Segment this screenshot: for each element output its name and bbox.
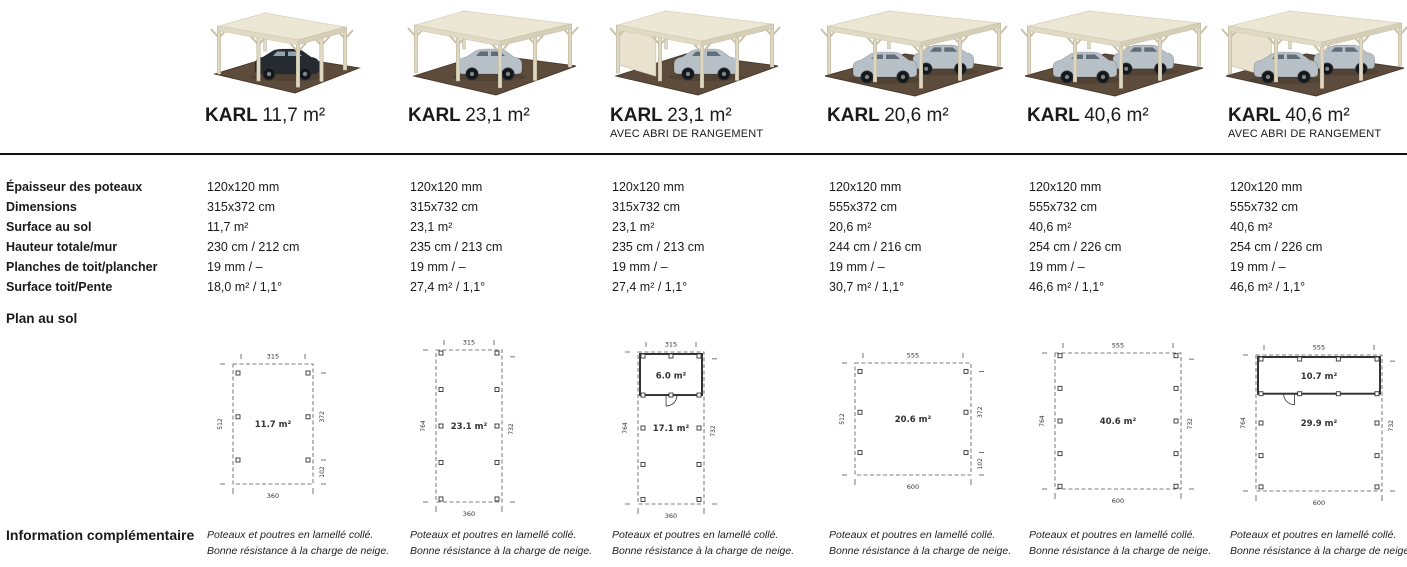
- carport-photo-illustration: [819, 0, 1009, 100]
- spec-value: 19 mm / –: [610, 257, 827, 277]
- spec-value: 23,1 m²: [610, 217, 827, 237]
- product-title-4: KARL 20,6 m²: [827, 105, 1027, 153]
- svg-text:20.6 m²: 20.6 m²: [895, 415, 932, 425]
- product-name: KARL: [827, 105, 880, 126]
- info-text-5: Poteaux et poutres en lamellé collé. Bon…: [1027, 527, 1228, 559]
- info-line: Poteaux et poutres en lamellé collé.: [612, 527, 827, 543]
- product-size: 23,1 m²: [667, 105, 731, 126]
- svg-text:512: 512: [839, 413, 846, 425]
- info-text-1: Poteaux et poutres en lamellé collé. Bon…: [205, 527, 408, 559]
- carport-photo-illustration: [602, 0, 792, 100]
- svg-text:6.0 m²: 6.0 m²: [656, 372, 687, 382]
- spec-value: 40,6 m²: [1027, 217, 1228, 237]
- floor-plan-4: 55560051237210220.6 m²: [827, 337, 1027, 525]
- svg-text:600: 600: [1112, 497, 1124, 505]
- spec-value: 244 cm / 216 cm: [827, 237, 1027, 257]
- product-subtitle: AVEC ABRI DE RANGEMENT: [1228, 128, 1407, 140]
- svg-text:360: 360: [463, 510, 475, 518]
- svg-text:17.1 m²: 17.1 m²: [653, 424, 690, 434]
- spec-value: 19 mm / –: [1228, 257, 1407, 277]
- spec-label: Épaisseur des poteaux: [0, 177, 205, 197]
- spec-value: 315x732 cm: [408, 197, 610, 217]
- spec-value: 315x372 cm: [205, 197, 408, 217]
- spec-label: Planches de toit/plancher: [0, 257, 205, 277]
- spec-value: 19 mm / –: [408, 257, 610, 277]
- spec-value: 254 cm / 226 cm: [1228, 237, 1407, 257]
- spec-value: 235 cm / 213 cm: [408, 237, 610, 257]
- svg-text:732: 732: [1388, 420, 1395, 432]
- spec-label: Hauteur totale/mur: [0, 237, 205, 257]
- spec-value: 315x732 cm: [610, 197, 827, 217]
- svg-text:40.6 m²: 40.6 m²: [1100, 417, 1137, 427]
- plan-section-title: Plan au sol: [0, 311, 205, 333]
- floor-plan-diagram: 31536076473223.1 m²: [412, 337, 530, 521]
- svg-text:555: 555: [1313, 344, 1325, 352]
- product-headers-row: KARL 11,7 m² KARL 23,1 m² KARL 23,1 m² A…: [0, 100, 1407, 153]
- floor-plan-5: 55560076473240.6 m²: [1027, 337, 1228, 525]
- spec-row-posts: Épaisseur des poteaux 120x120 mm 120x120…: [0, 177, 1407, 197]
- product-photo-3: [610, 0, 827, 100]
- product-title-3: KARL 23,1 m² AVEC ABRI DE RANGEMENT: [610, 105, 827, 153]
- spec-value: 20,6 m²: [827, 217, 1027, 237]
- spec-row-roof: Surface toit/Pente 18,0 m² / 1,1° 27,4 m…: [0, 277, 1407, 297]
- spec-table: Épaisseur des poteaux 120x120 mm 120x120…: [0, 177, 1407, 297]
- spec-value: 120x120 mm: [1228, 177, 1407, 197]
- svg-text:360: 360: [665, 512, 677, 520]
- spec-value: 19 mm / –: [827, 257, 1027, 277]
- spec-value: 19 mm / –: [205, 257, 408, 277]
- info-line: Poteaux et poutres en lamellé collé.: [829, 527, 1027, 543]
- svg-text:764: 764: [420, 420, 427, 432]
- product-title-6: KARL 40,6 m² AVEC ABRI DE RANGEMENT: [1228, 105, 1407, 153]
- spec-row-dimensions: Dimensions 315x372 cm 315x732 cm 315x732…: [0, 197, 1407, 217]
- info-text-6: Poteaux et poutres en lamellé collé. Bon…: [1228, 527, 1407, 559]
- svg-text:10.7 m²: 10.7 m²: [1301, 372, 1338, 382]
- floor-plan-6: 55560076473210.7 m²29.9 m²: [1228, 337, 1407, 525]
- spec-value: 23,1 m²: [408, 217, 610, 237]
- spec-row-boards: Planches de toit/plancher 19 mm / – 19 m…: [0, 257, 1407, 277]
- svg-text:555: 555: [907, 352, 919, 360]
- svg-text:11.7 m²: 11.7 m²: [255, 420, 292, 430]
- floor-plan-2: 31536076473223.1 m²: [408, 337, 610, 525]
- product-photo-1: [205, 0, 408, 100]
- svg-text:360: 360: [267, 492, 279, 500]
- empty-label-cell: [0, 337, 205, 525]
- svg-text:315: 315: [665, 341, 677, 349]
- svg-text:732: 732: [1187, 418, 1194, 430]
- spec-value: 27,4 m² / 1,1°: [610, 277, 827, 297]
- floor-plan-diagram: 3153607647326.0 m²17.1 m²: [614, 339, 732, 523]
- empty-label-cell: [0, 0, 205, 100]
- floor-plan-diagram: 31536051237210211.7 m²: [209, 351, 341, 503]
- product-title-2: KARL 23,1 m²: [408, 105, 610, 153]
- svg-text:23.1 m²: 23.1 m²: [451, 422, 488, 432]
- info-text-4: Poteaux et poutres en lamellé collé. Bon…: [827, 527, 1027, 559]
- spec-value: 40,6 m²: [1228, 217, 1407, 237]
- spec-label: Dimensions: [0, 197, 205, 217]
- info-text-3: Poteaux et poutres en lamellé collé. Bon…: [610, 527, 827, 559]
- svg-text:372: 372: [319, 411, 326, 423]
- svg-text:102: 102: [977, 458, 984, 470]
- info-line: Poteaux et poutres en lamellé collé.: [1029, 527, 1228, 543]
- spec-value: 27,4 m² / 1,1°: [408, 277, 610, 297]
- product-name: KARL: [1027, 105, 1080, 126]
- spec-value: 30,7 m² / 1,1°: [827, 277, 1027, 297]
- product-title-1: KARL 11,7 m²: [205, 105, 408, 153]
- svg-text:29.9 m²: 29.9 m²: [1301, 419, 1338, 429]
- spec-value: 555x732 cm: [1228, 197, 1407, 217]
- product-title-5: KARL 40,6 m²: [1027, 105, 1228, 153]
- svg-text:372: 372: [977, 406, 984, 418]
- spec-value: 120x120 mm: [1027, 177, 1228, 197]
- carport-photo-illustration: [1019, 0, 1209, 100]
- info-section-title: Information complémentaire: [0, 527, 205, 559]
- product-photo-4: [827, 0, 1027, 100]
- info-line: Bonne résistance à la charge de neige.: [829, 543, 1027, 559]
- info-line: Bonne résistance à la charge de neige.: [410, 543, 610, 559]
- floor-plans-row: 31536051237210211.7 m² 31536076473223.1 …: [0, 337, 1407, 525]
- carport-comparison-sheet: KARL 11,7 m² KARL 23,1 m² KARL 23,1 m² A…: [0, 0, 1407, 567]
- info-line: Bonne résistance à la charge de neige.: [1029, 543, 1228, 559]
- spec-value: 254 cm / 226 cm: [1027, 237, 1228, 257]
- svg-text:732: 732: [710, 425, 717, 437]
- svg-text:315: 315: [267, 353, 279, 361]
- spec-value: 235 cm / 213 cm: [610, 237, 827, 257]
- info-line: Poteaux et poutres en lamellé collé.: [410, 527, 610, 543]
- spec-row-height: Hauteur totale/mur 230 cm / 212 cm 235 c…: [0, 237, 1407, 257]
- spec-label: Surface toit/Pente: [0, 277, 205, 297]
- svg-text:600: 600: [907, 483, 919, 491]
- spec-value: 555x732 cm: [1027, 197, 1228, 217]
- spec-value: 120x120 mm: [408, 177, 610, 197]
- floor-plan-diagram: 55560076473210.7 m²29.9 m²: [1232, 342, 1407, 510]
- svg-text:102: 102: [319, 466, 326, 478]
- product-size: 20,6 m²: [884, 105, 948, 126]
- svg-text:764: 764: [622, 422, 629, 434]
- spec-row-surface: Surface au sol 11,7 m² 23,1 m² 23,1 m² 2…: [0, 217, 1407, 237]
- spec-value: 230 cm / 212 cm: [205, 237, 408, 257]
- additional-info-row: Information complémentaire Poteaux et po…: [0, 527, 1407, 559]
- product-name: KARL: [205, 105, 258, 126]
- header-divider-line: [0, 153, 1407, 155]
- info-line: Bonne résistance à la charge de neige.: [207, 543, 408, 559]
- carport-photo-illustration: [197, 0, 387, 100]
- svg-text:764: 764: [1240, 417, 1247, 429]
- spec-value: 19 mm / –: [1027, 257, 1228, 277]
- svg-text:555: 555: [1112, 342, 1124, 350]
- info-line: Bonne résistance à la charge de neige.: [612, 543, 827, 559]
- product-size: 40,6 m²: [1285, 105, 1349, 126]
- info-text-2: Poteaux et poutres en lamellé collé. Bon…: [408, 527, 610, 559]
- spec-value: 120x120 mm: [827, 177, 1027, 197]
- product-name: KARL: [610, 105, 663, 126]
- product-size: 40,6 m²: [1084, 105, 1148, 126]
- info-line: Poteaux et poutres en lamellé collé.: [207, 527, 408, 543]
- product-images-row: [0, 0, 1407, 100]
- product-photo-5: [1027, 0, 1228, 100]
- product-size: 11,7 m²: [262, 105, 325, 126]
- empty-label-cell: [0, 105, 205, 153]
- svg-text:764: 764: [1039, 415, 1046, 427]
- info-line: Bonne résistance à la charge de neige.: [1230, 543, 1407, 559]
- product-name: KARL: [1228, 105, 1281, 126]
- spec-value: 120x120 mm: [205, 177, 408, 197]
- floor-plan-diagram: 55560076473240.6 m²: [1031, 340, 1209, 508]
- spec-value: 11,7 m²: [205, 217, 408, 237]
- spec-value: 46,6 m² / 1,1°: [1228, 277, 1407, 297]
- spec-value: 46,6 m² / 1,1°: [1027, 277, 1228, 297]
- svg-text:600: 600: [1313, 499, 1325, 507]
- spec-value: 18,0 m² / 1,1°: [205, 277, 408, 297]
- product-subtitle: AVEC ABRI DE RANGEMENT: [610, 128, 827, 140]
- svg-text:732: 732: [508, 423, 515, 435]
- product-photo-2: [408, 0, 610, 100]
- carport-photo-illustration: [400, 0, 590, 100]
- svg-text:512: 512: [217, 418, 224, 430]
- plan-section-title-row: Plan au sol: [0, 311, 1407, 333]
- spec-value: 555x372 cm: [827, 197, 1027, 217]
- product-size: 23,1 m²: [465, 105, 529, 126]
- spec-label: Surface au sol: [0, 217, 205, 237]
- floor-plan-diagram: 55560051237210220.6 m²: [831, 350, 999, 494]
- floor-plan-3: 3153607647326.0 m²17.1 m²: [610, 337, 827, 525]
- spec-value: 120x120 mm: [610, 177, 827, 197]
- floor-plan-1: 31536051237210211.7 m²: [205, 337, 408, 525]
- info-line: Poteaux et poutres en lamellé collé.: [1230, 527, 1407, 543]
- carport-photo-illustration: [1220, 0, 1407, 100]
- product-photo-6: [1228, 0, 1407, 100]
- svg-text:315: 315: [463, 339, 475, 347]
- product-name: KARL: [408, 105, 461, 126]
